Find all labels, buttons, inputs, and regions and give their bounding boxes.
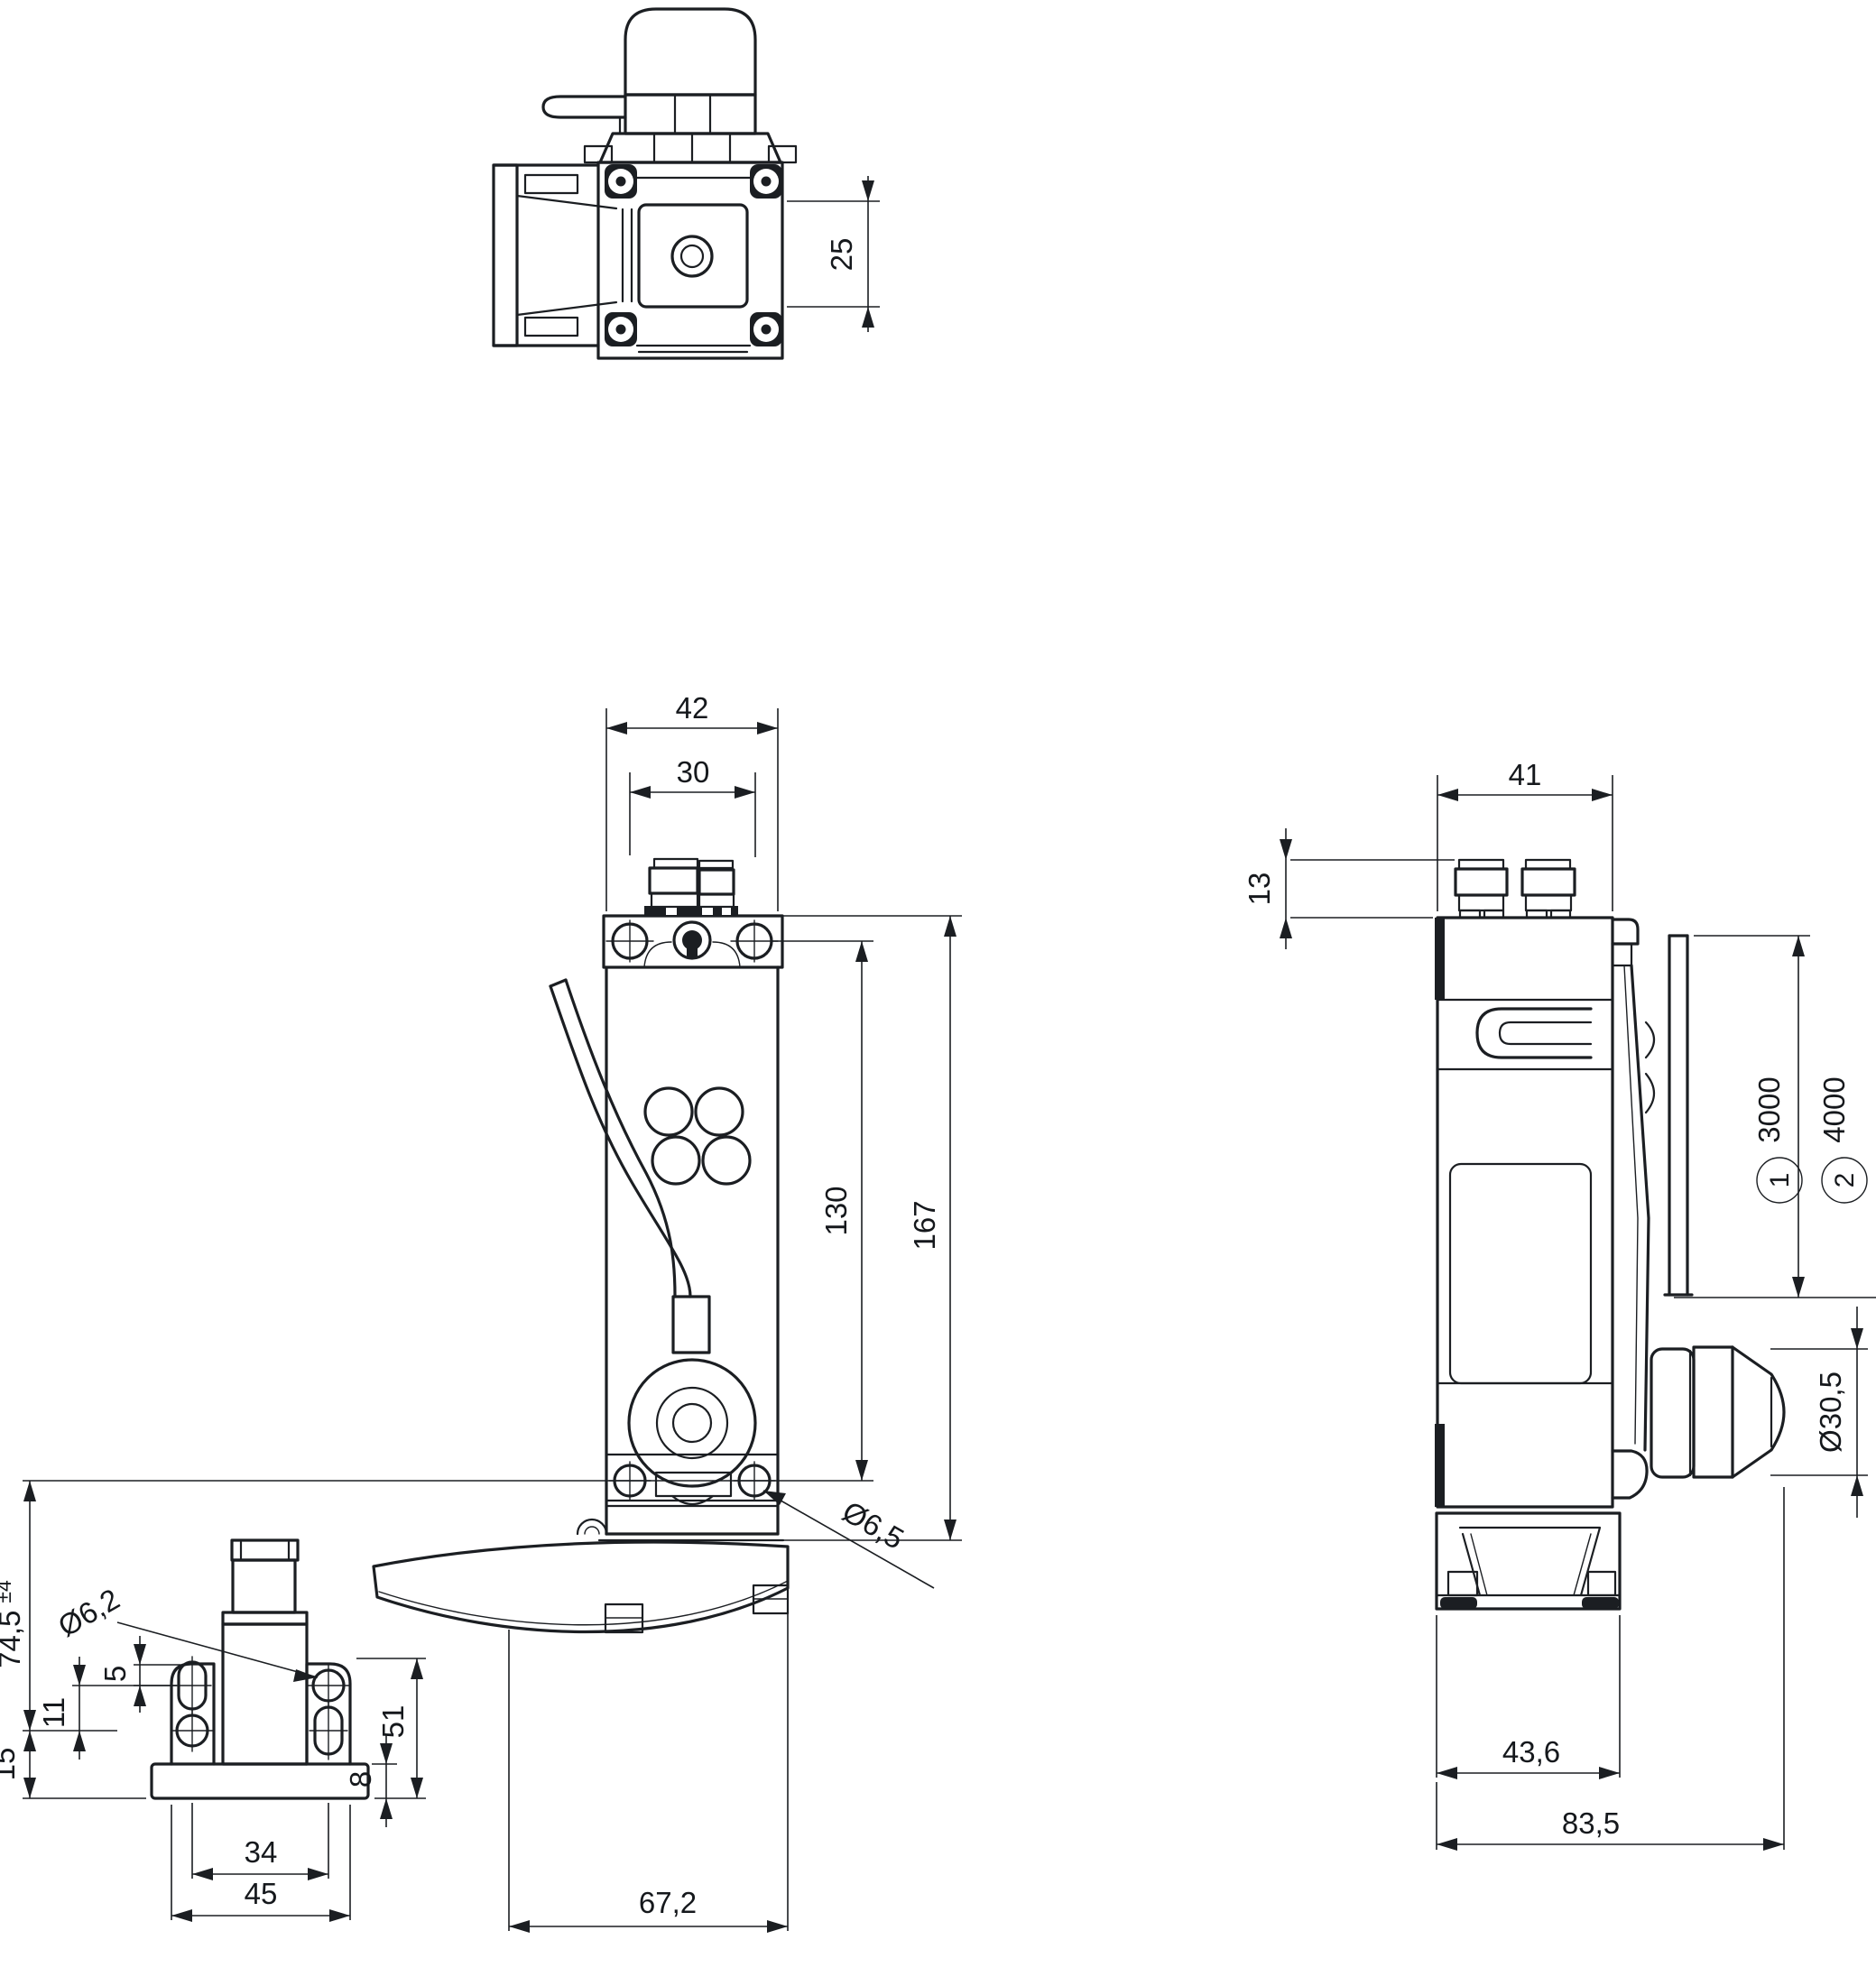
dim-label-42: 42 xyxy=(676,691,709,725)
dim-label-745: 74,5±4 xyxy=(0,1580,26,1668)
side-connectors xyxy=(1456,860,1575,918)
dim-label-15: 15 xyxy=(0,1748,21,1781)
dim-label-d62: Ø6,2 xyxy=(52,1582,125,1643)
dim-bracket-hole-dia: Ø6,2 xyxy=(52,1582,318,1682)
top-neck xyxy=(600,134,781,162)
side-cable xyxy=(1665,936,1692,1295)
dim-side-width: 41 xyxy=(1437,758,1613,911)
bracket-holes xyxy=(171,1657,349,1760)
top-lever-arm xyxy=(543,97,625,117)
dim-front-connector-spacing: 30 xyxy=(630,755,755,857)
front-top-screws xyxy=(606,920,778,962)
drawing-canvas: 25 xyxy=(0,0,1876,1986)
top-front-face xyxy=(639,205,747,307)
top-connector-dome xyxy=(625,9,755,95)
dim-front-hole-spacing: 130 xyxy=(23,941,873,1481)
bracket-base-plate xyxy=(152,1764,368,1798)
side-actuator-head xyxy=(1651,1347,1784,1477)
side-foot xyxy=(1437,1513,1620,1609)
dim-label-11: 11 xyxy=(37,1697,70,1728)
dim-label-34: 34 xyxy=(245,1835,278,1869)
side-label-panel xyxy=(1450,1164,1591,1383)
dim-front-lever-width: 67,2 xyxy=(509,1593,788,1933)
front-cable-gland xyxy=(673,1297,709,1353)
dim-side-cable-length: 3000 4000 1 2 xyxy=(1674,936,1876,1298)
dim-bracket-hole-spacing: 34 xyxy=(192,1803,328,1880)
dim-745-tolerance: ±4 xyxy=(0,1580,15,1603)
dim-side-foot-width: 43,6 xyxy=(1437,1615,1620,1779)
dim-label-8: 8 xyxy=(344,1771,377,1787)
dim-bracket-plate-thickness: 8 xyxy=(344,1735,397,1827)
dim-front-width: 42 xyxy=(606,691,778,911)
dim-label-13: 13 xyxy=(1243,873,1276,906)
front-connectors xyxy=(644,859,738,917)
dim-label-130: 130 xyxy=(819,1186,853,1235)
dim-label-5: 5 xyxy=(98,1666,132,1682)
top-view: 25 xyxy=(494,9,880,358)
dim-label-3000: 3000 xyxy=(1752,1076,1786,1142)
callout-1: 1 xyxy=(1765,1173,1795,1188)
dim-label-672: 67,2 xyxy=(639,1886,697,1919)
dim-label-4000: 4000 xyxy=(1817,1076,1851,1142)
front-view: 42 30 130 167 xyxy=(23,691,962,1933)
bracket-view: 74,5±4 15 11 5 xyxy=(0,1481,426,1922)
dim-bracket-offset: 15 xyxy=(0,1731,146,1798)
front-roller xyxy=(629,1360,755,1504)
bracket-plunger xyxy=(223,1540,307,1764)
front-rocker-shoe xyxy=(374,1542,788,1632)
front-led-indicators xyxy=(645,1088,750,1184)
callout-2: 2 xyxy=(1830,1173,1860,1188)
dim-label-51: 51 xyxy=(376,1705,410,1739)
front-cable xyxy=(550,980,709,1353)
dim-side-connector-height: 13 xyxy=(1243,828,1455,949)
dim-bracket-slot-play: 5 xyxy=(98,1636,180,1713)
top-center-hole xyxy=(672,236,712,276)
side-fork-slot xyxy=(1477,1009,1591,1058)
dim-label-25: 25 xyxy=(825,238,858,272)
dim-label-45: 45 xyxy=(245,1877,278,1910)
dim-front-height: 167 xyxy=(782,916,962,1540)
dim-label-167: 167 xyxy=(908,1200,941,1250)
dim-label-d305: Ø30,5 xyxy=(1814,1372,1847,1453)
dim-label-d65: Ø6,5 xyxy=(837,1494,910,1556)
bracket-arms xyxy=(171,1664,350,1764)
dim-top-depth: 25 xyxy=(787,176,880,332)
dim-label-41: 41 xyxy=(1509,758,1542,791)
side-view: 41 13 3000 4000 1 2 xyxy=(1243,758,1876,1851)
dim-label-30: 30 xyxy=(677,755,710,789)
side-body xyxy=(1437,918,1613,1507)
side-door-cover xyxy=(1613,919,1654,1498)
dim-label-835: 83,5 xyxy=(1562,1806,1620,1840)
dim-745-value: 74,5 xyxy=(0,1611,26,1668)
dim-label-436: 43,6 xyxy=(1502,1735,1560,1769)
top-connector-band xyxy=(625,95,755,134)
dim-side-total-depth: 83,5 xyxy=(1437,1487,1784,1851)
